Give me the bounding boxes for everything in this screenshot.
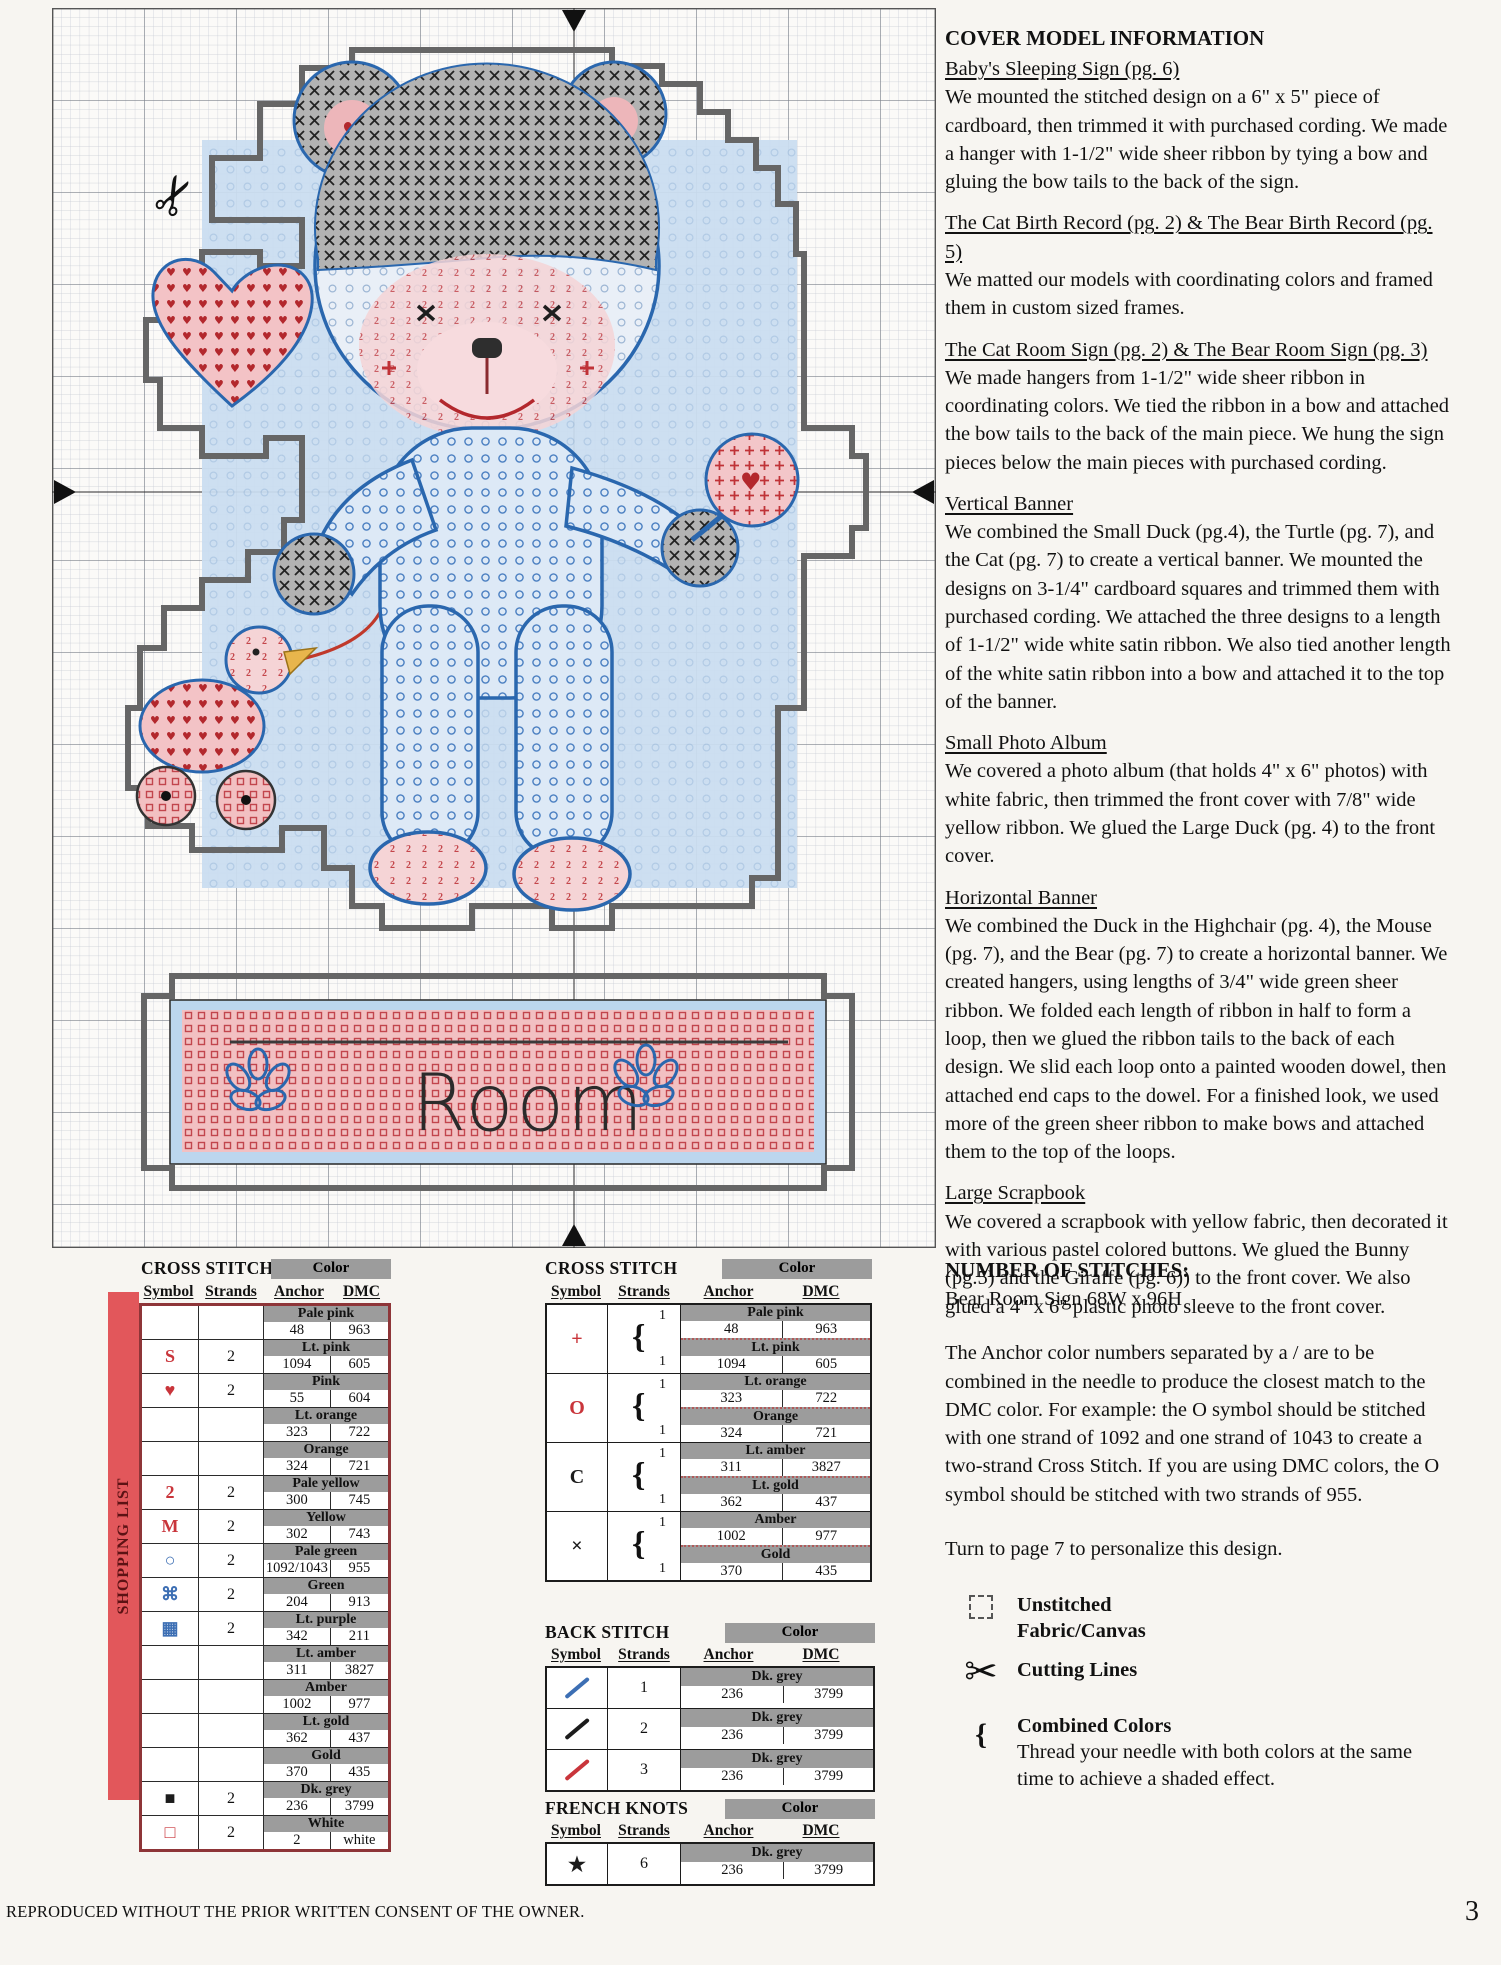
color-cell: Dk. grey2363799: [681, 1668, 873, 1708]
stitch-symbol: M: [142, 1510, 199, 1543]
cross-stitch-title: CROSS STITCH: [141, 1258, 273, 1279]
col-symbol: Symbol: [545, 1646, 607, 1666]
legend-item: {Combined ColorsThread your needle with …: [945, 1714, 1453, 1793]
stitch-symbol: 2: [142, 1476, 199, 1509]
combined-strands-brace: 1{1: [608, 1374, 680, 1442]
color-header-chip: Color: [725, 1623, 875, 1643]
color-entry: Lt. gold362437: [681, 1476, 870, 1511]
unstitched-square-icon: [969, 1595, 993, 1619]
color-numbers: 1092/1043955: [264, 1560, 388, 1577]
anchor-number: 311: [264, 1662, 330, 1679]
stitch-symbol: ×: [547, 1512, 608, 1580]
color-name: Dk. grey: [681, 1668, 873, 1686]
legend-label: UnstitchedFabric/Canvas: [1017, 1593, 1146, 1644]
color-cell: Pale pink48963: [264, 1306, 388, 1339]
cross-stitch-title: CROSS STITCH: [545, 1258, 677, 1278]
cover-model-section: Vertical BannerWe combined the Small Duc…: [945, 490, 1453, 716]
back-stitch-row: 2Dk. grey2363799: [547, 1708, 873, 1749]
col-symbol: Symbol: [139, 1283, 198, 1303]
stitch-symbol: [547, 1750, 608, 1790]
brace-glyph: {: [632, 1525, 645, 1563]
brace-icon: {: [945, 1714, 1017, 1793]
col-anchor: Anchor: [681, 1283, 776, 1303]
col-anchor: Anchor: [681, 1646, 776, 1666]
dmc-number: 977: [330, 1696, 388, 1713]
cover-model-section: Baby's Sleeping Sign (pg. 6)We mounted t…: [945, 55, 1453, 196]
color-entry: Lt. purple342211: [264, 1612, 388, 1645]
anchor-number: 2: [264, 1832, 330, 1849]
cover-model-section: The Cat Birth Record (pg. 2) & The Bear …: [945, 209, 1453, 322]
color-numbers: 370435: [681, 1563, 870, 1580]
color-entry: Lt. orange323722: [681, 1374, 870, 1407]
anchor-number: 302: [264, 1526, 330, 1543]
combined-row: C1{1Lt. amber3113827Lt. gold362437: [547, 1442, 870, 1511]
dmc-number: 605: [782, 1356, 870, 1373]
table-header: FRENCH KNOTS Color: [545, 1798, 875, 1822]
section-body: We made hangers from 1-1/2" wide sheer r…: [945, 364, 1453, 477]
back-stitch-rows: 1Dk. grey23637992Dk. grey23637993Dk. gre…: [545, 1666, 875, 1792]
color-name: Lt. amber: [264, 1646, 388, 1662]
section-heading: Horizontal Banner: [945, 884, 1453, 912]
stitch-symbol: [142, 1748, 199, 1781]
dmc-number: 963: [782, 1321, 870, 1338]
cross-stitch-row: ♥2Pink55604: [142, 1373, 388, 1407]
number-of-stitches: NUMBER OF STITCHES: Bear Room Sign 68W x…: [945, 1256, 1453, 1807]
stitch-symbol: [142, 1306, 199, 1339]
shopping-list-banner: SHOPPING LIST: [108, 1292, 139, 1800]
strands-value: 2: [199, 1510, 264, 1543]
color-cell: Dk. grey2363799: [681, 1750, 873, 1790]
color-name: Pale green: [264, 1544, 388, 1560]
anchor-number: 1002: [681, 1528, 782, 1545]
stitch-symbol: [142, 1442, 199, 1475]
legend-item: UnstitchedFabric/Canvas: [945, 1593, 1453, 1644]
column-headers: Symbol Strands Anchor DMC: [545, 1283, 872, 1303]
strands-value: 2: [199, 1816, 264, 1849]
color-header-chip: Color: [722, 1259, 872, 1279]
dmc-number: 605: [330, 1356, 388, 1373]
col-anchor: Anchor: [264, 1283, 334, 1303]
color-name: Orange: [264, 1442, 388, 1458]
color-numbers: 1094605: [264, 1356, 388, 1373]
stitch-symbol: +: [547, 1305, 608, 1373]
color-entry: Lt. pink1094605: [264, 1340, 388, 1373]
color-numbers: 2363799: [681, 1768, 873, 1785]
combined-cross-stitch-rows: +1{1Pale pink48963Lt. pink1094605O1{1Lt.…: [545, 1303, 872, 1582]
stitch-symbol: C: [547, 1443, 608, 1511]
anchor-number: 1092/1043: [264, 1560, 330, 1577]
cross-stitch-row: ■2Dk. grey2363799: [142, 1781, 388, 1815]
french-knots-rows: ★6Dk. grey2363799: [545, 1842, 875, 1886]
dmc-number: 3799: [330, 1798, 388, 1815]
back-stitch-row: 1Dk. grey2363799: [547, 1668, 873, 1708]
color-entry: Lt. orange323722: [264, 1408, 388, 1441]
color-entry: Pale green1092/1043955: [264, 1544, 388, 1577]
color-name: White: [264, 1816, 388, 1832]
brace-glyph: {: [632, 1456, 645, 1494]
strand-count-top: 1: [659, 1446, 666, 1462]
color-numbers: 3113827: [681, 1459, 870, 1476]
color-entry: Lt. pink1094605: [681, 1338, 870, 1373]
strand-count-top: 1: [659, 1377, 666, 1393]
cross-stitch-row: Lt. gold362437: [142, 1713, 388, 1747]
stitch-symbol: ■: [142, 1782, 199, 1815]
color-entry: White2white: [264, 1816, 388, 1849]
col-strands: Strands: [607, 1646, 681, 1666]
color-entry: Lt. amber3113827: [264, 1646, 388, 1679]
color-numbers: 48963: [681, 1321, 870, 1338]
color-cell: Green204913: [264, 1578, 388, 1611]
cross-stitch-row: Lt. amber3113827: [142, 1645, 388, 1679]
color-entry: Yellow302743: [264, 1510, 388, 1543]
anchor-number: 236: [264, 1798, 330, 1815]
stitch-symbol: ★: [547, 1844, 608, 1884]
strand-count-bottom: 1: [659, 1561, 666, 1577]
column-headers: Symbol Strands Anchor DMC: [139, 1283, 391, 1303]
color-cell: Gold370435: [264, 1748, 388, 1781]
color-name: Green: [264, 1578, 388, 1594]
cross-stitch-row: M2Yellow302743: [142, 1509, 388, 1543]
cross-stitch-row: Pale pink48963: [142, 1306, 388, 1339]
color-numbers: 3113827: [264, 1662, 388, 1679]
anchor-number: 362: [264, 1730, 330, 1747]
combined-strands-brace: 1{1: [608, 1512, 680, 1580]
cross-stitch-row: ○2Pale green1092/1043955: [142, 1543, 388, 1577]
cross-stitch-row: Amber1002977: [142, 1679, 388, 1713]
combined-row: O1{1Lt. orange323722Orange324721: [547, 1373, 870, 1442]
chart-svg: 2 ♥: [52, 8, 936, 1248]
color-header-chip: Color: [725, 1799, 875, 1819]
color-numbers: 302743: [264, 1526, 388, 1543]
color-numbers: 324721: [681, 1425, 870, 1442]
stitch-symbol: ○: [142, 1544, 199, 1577]
color-name: Lt. orange: [264, 1408, 388, 1424]
stitch-symbol: S: [142, 1340, 199, 1373]
color-cell: Dk. grey2363799: [681, 1709, 873, 1749]
color-name: Dk. grey: [264, 1782, 388, 1798]
strands-value: [199, 1442, 264, 1475]
strand-count-bottom: 1: [659, 1423, 666, 1439]
anchor-number: 323: [264, 1424, 330, 1441]
color-name: Amber: [264, 1680, 388, 1696]
anchor-number: 324: [681, 1425, 782, 1442]
anchor-number: 1094: [264, 1356, 330, 1373]
strand-count-top: 1: [659, 1515, 666, 1531]
section-heading: The Cat Birth Record (pg. 2) & The Bear …: [945, 209, 1453, 266]
dmc-number: 3827: [782, 1459, 870, 1476]
color-entry: Lt. amber3113827: [681, 1443, 870, 1476]
section-body: We covered a photo album (that holds 4" …: [945, 757, 1453, 870]
stitch-symbol: □: [142, 1816, 199, 1849]
col-symbol: Symbol: [545, 1283, 607, 1303]
section-body: We matted our models with coordinating c…: [945, 266, 1453, 323]
anchor-number: 311: [681, 1459, 782, 1476]
anchor-number: 1002: [264, 1696, 330, 1713]
french-knots-table: FRENCH KNOTS Color Symbol Strands Anchor…: [545, 1798, 875, 1886]
anchor-number: 342: [264, 1628, 330, 1645]
col-symbol: Symbol: [545, 1822, 607, 1842]
color-name: Yellow: [264, 1510, 388, 1526]
backstitch-line-symbol: [564, 1759, 589, 1781]
nos-title: NUMBER OF STITCHES:: [945, 1256, 1453, 1285]
color-name: Dk. grey: [681, 1750, 873, 1768]
cross-stitch-row: Gold370435: [142, 1747, 388, 1781]
legend-item: ✂Cutting Lines: [945, 1658, 1453, 1699]
cross-stitch-chart: 2 ♥: [52, 8, 936, 1248]
color-cell: White2white: [264, 1816, 388, 1849]
col-strands: Strands: [198, 1283, 264, 1303]
strands-value: [199, 1306, 264, 1339]
color-cell: Dk. grey2363799: [264, 1782, 388, 1815]
strands-value: 2: [199, 1782, 264, 1815]
section-body: We mounted the stitched design on a 6" x…: [945, 83, 1453, 196]
color-numbers: 1094605: [681, 1356, 870, 1373]
col-dmc: DMC: [334, 1283, 389, 1303]
sign-text: Room: [412, 1059, 646, 1149]
color-name: Lt. orange: [681, 1374, 870, 1390]
cover-model-information: COVER MODEL INFORMATION Baby's Sleeping …: [945, 24, 1453, 1334]
color-cell: Lt. amber3113827: [264, 1646, 388, 1679]
color-name: Gold: [681, 1545, 870, 1563]
section-body: We combined the Duck in the Highchair (p…: [945, 912, 1453, 1167]
color-name: Dk. grey: [681, 1709, 873, 1727]
chart-legend: UnstitchedFabric/Canvas✂Cutting Lines{Co…: [945, 1593, 1453, 1792]
backstitch-line-symbol: [564, 1718, 589, 1740]
color-cell: Pink55604: [264, 1374, 388, 1407]
strands-value: [199, 1714, 264, 1747]
color-entry: Pale pink48963: [264, 1306, 388, 1339]
strands-value: 2: [608, 1709, 681, 1749]
table-header: BACK STITCH Color: [545, 1622, 875, 1646]
combined-strands-brace: 1{1: [608, 1305, 680, 1373]
anchor-number: 55: [264, 1390, 330, 1407]
anchor-number: 48: [681, 1321, 782, 1338]
dmc-number: 913: [330, 1594, 388, 1611]
legend-label: Combined ColorsThread your needle with b…: [1017, 1714, 1453, 1793]
copyright-notice: REPRODUCED WITHOUT THE PRIOR WRITTEN CON…: [6, 1902, 585, 1922]
dmc-number: 211: [330, 1628, 388, 1645]
anchor-number: 362: [681, 1494, 782, 1511]
stitch-symbol: O: [547, 1374, 608, 1442]
color-entry: Gold370435: [681, 1545, 870, 1580]
anchor-number: 324: [264, 1458, 330, 1475]
cover-model-section: The Cat Room Sign (pg. 2) & The Bear Roo…: [945, 336, 1453, 477]
cover-model-section: Small Photo AlbumWe covered a photo albu…: [945, 729, 1453, 870]
color-cell: Pale green1092/1043955: [264, 1544, 388, 1577]
nos-subtitle: Bear Room Sign 68W x 96H: [945, 1285, 1453, 1313]
legend-label-line: Combined Colors: [1017, 1714, 1453, 1740]
strands-value: 1: [608, 1668, 681, 1708]
strands-value: 2: [199, 1612, 264, 1645]
cover-model-sections: Baby's Sleeping Sign (pg. 6)We mounted t…: [945, 55, 1453, 1321]
color-numbers: 362437: [264, 1730, 388, 1747]
color-cell: Pale pink48963Lt. pink1094605: [681, 1305, 870, 1373]
color-entry: Pale pink48963: [681, 1305, 870, 1338]
dmc-number: 963: [330, 1322, 388, 1339]
strands-value: 6: [608, 1844, 681, 1884]
shopping-list-label: SHOPPING LIST: [115, 1477, 133, 1614]
cross-stitch-row: Orange324721: [142, 1441, 388, 1475]
color-numbers: 48963: [264, 1322, 388, 1339]
color-cell: Orange324721: [264, 1442, 388, 1475]
color-entry: Dk. grey2363799: [681, 1668, 873, 1703]
dmc-number: 3799: [783, 1862, 873, 1879]
color-cell: Amber1002977Gold370435: [681, 1512, 870, 1580]
dmc-number: 721: [330, 1458, 388, 1475]
section-heading: Large Scrapbook: [945, 1179, 1453, 1207]
cross-stitch-row: ⌘2Green204913: [142, 1577, 388, 1611]
dmc-number: 3799: [783, 1686, 873, 1703]
color-numbers: 362437: [681, 1494, 870, 1511]
anchor-number: 204: [264, 1594, 330, 1611]
combined-row: ×1{1Amber1002977Gold370435: [547, 1511, 870, 1580]
color-numbers: 55604: [264, 1390, 388, 1407]
color-numbers: 204913: [264, 1594, 388, 1611]
svg-text:♥: ♥: [740, 468, 762, 496]
color-name: Lt. gold: [681, 1476, 870, 1494]
legend-label-line: Fabric/Canvas: [1017, 1619, 1146, 1645]
cross-stitch-row: □2White2white: [142, 1815, 388, 1849]
color-name: Amber: [681, 1512, 870, 1528]
color-entry: Dk. grey2363799: [264, 1782, 388, 1815]
color-cell: Amber1002977: [264, 1680, 388, 1713]
strands-value: 2: [199, 1476, 264, 1509]
table-header: CROSS STITCH Color: [139, 1258, 391, 1283]
color-name: Dk. grey: [681, 1844, 873, 1862]
stitch-symbol: ⌘: [142, 1578, 199, 1611]
color-numbers: 1002977: [264, 1696, 388, 1713]
color-numbers: 323722: [681, 1390, 870, 1407]
stitch-symbol: [547, 1668, 608, 1708]
color-numbers: 370435: [264, 1764, 388, 1781]
section-heading: Baby's Sleeping Sign (pg. 6): [945, 55, 1453, 83]
legend-description: Thread your needle with both colors at t…: [1017, 1739, 1453, 1792]
unstitched-square-icon: [945, 1593, 1017, 1644]
color-numbers: 2363799: [681, 1727, 873, 1744]
nos-paragraph: The Anchor color numbers separated by a …: [945, 1339, 1453, 1509]
nos-note: Turn to page 7 to personalize this desig…: [945, 1535, 1453, 1563]
color-entry: Dk. grey2363799: [681, 1709, 873, 1744]
color-numbers: 323722: [264, 1424, 388, 1441]
color-entry: Lt. gold362437: [264, 1714, 388, 1747]
col-strands: Strands: [607, 1283, 681, 1303]
combined-strands-brace: 1{1: [608, 1443, 680, 1511]
dmc-number: 722: [330, 1424, 388, 1441]
strands-cell: 1{1: [608, 1305, 681, 1373]
color-numbers: 324721: [264, 1458, 388, 1475]
color-numbers: 2363799: [681, 1862, 873, 1879]
section-heading: Vertical Banner: [945, 490, 1453, 518]
color-name: Pale pink: [264, 1306, 388, 1322]
french-knots-title: FRENCH KNOTS: [545, 1798, 688, 1818]
dmc-number: 721: [782, 1425, 870, 1442]
color-entry: Orange324721: [264, 1442, 388, 1475]
scissors-icon: ✂: [945, 1658, 1017, 1699]
color-name: Pink: [264, 1374, 388, 1390]
column-headers: Symbol Strands Anchor DMC: [545, 1822, 875, 1842]
section-body: We combined the Small Duck (pg.4), the T…: [945, 518, 1453, 716]
strands-value: [199, 1408, 264, 1441]
anchor-number: 236: [681, 1727, 783, 1744]
color-name: Pale pink: [681, 1305, 870, 1321]
anchor-number: 370: [681, 1563, 782, 1580]
stitch-symbol: [142, 1680, 199, 1713]
strands-value: [199, 1646, 264, 1679]
col-strands: Strands: [607, 1822, 681, 1842]
color-name: Orange: [681, 1407, 870, 1425]
strands-value: 2: [199, 1374, 264, 1407]
col-dmc: DMC: [776, 1646, 866, 1666]
dmc-number: 3799: [783, 1727, 873, 1744]
anchor-number: 236: [681, 1862, 783, 1879]
color-cell: Lt. orange323722: [264, 1408, 388, 1441]
color-cell: Lt. gold362437: [264, 1714, 388, 1747]
color-numbers: 2white: [264, 1832, 388, 1849]
color-entry: Pale yellow300745: [264, 1476, 388, 1509]
color-name: Lt. gold: [264, 1714, 388, 1730]
dmc-number: 745: [330, 1492, 388, 1509]
color-entry: Orange324721: [681, 1407, 870, 1442]
dmc-number: 955: [330, 1560, 388, 1577]
color-cell: Lt. purple342211: [264, 1612, 388, 1645]
french-knot-row: ★6Dk. grey2363799: [547, 1844, 873, 1884]
color-name: Pale yellow: [264, 1476, 388, 1492]
strands-cell: 1{1: [608, 1443, 681, 1511]
color-numbers: 2363799: [264, 1798, 388, 1815]
brace-glyph: {: [632, 1318, 645, 1356]
color-entry: Amber1002977: [264, 1680, 388, 1713]
col-anchor: Anchor: [681, 1822, 776, 1842]
combined-row: +1{1Pale pink48963Lt. pink1094605: [547, 1305, 870, 1373]
dmc-number: 435: [782, 1563, 870, 1580]
stitch-symbol: [142, 1408, 199, 1441]
color-numbers: 1002977: [681, 1528, 870, 1545]
color-numbers: 342211: [264, 1628, 388, 1645]
dmc-number: 604: [330, 1390, 388, 1407]
back-stitch-row: 3Dk. grey2363799: [547, 1749, 873, 1790]
cover-model-section: Horizontal BannerWe combined the Duck in…: [945, 884, 1453, 1167]
pattern-book-page: 2 ♥: [0, 0, 1501, 1965]
legend-label: Cutting Lines: [1017, 1658, 1137, 1699]
back-stitch-title: BACK STITCH: [545, 1622, 669, 1642]
col-dmc: DMC: [776, 1822, 866, 1842]
color-name: Gold: [264, 1748, 388, 1764]
back-stitch-table: BACK STITCH Color Symbol Strands Anchor …: [545, 1622, 875, 1792]
color-entry: Dk. grey2363799: [681, 1750, 873, 1785]
color-entry: Dk. grey2363799: [681, 1844, 873, 1879]
stitch-symbol: [142, 1714, 199, 1747]
legend-label-line: Unstitched: [1017, 1593, 1146, 1619]
dmc-number: white: [330, 1832, 388, 1849]
color-entry: Pink55604: [264, 1374, 388, 1407]
dmc-number: 3827: [330, 1662, 388, 1679]
color-name: Lt. pink: [264, 1340, 388, 1356]
strand-count-top: 1: [659, 1308, 666, 1324]
strands-value: [199, 1680, 264, 1713]
column-headers: Symbol Strands Anchor DMC: [545, 1646, 875, 1666]
strands-value: [199, 1748, 264, 1781]
strands-value: 2: [199, 1340, 264, 1373]
anchor-number: 323: [681, 1390, 782, 1407]
color-cell: Yellow302743: [264, 1510, 388, 1543]
color-cell: Dk. grey2363799: [681, 1844, 873, 1884]
dmc-number: 722: [782, 1390, 870, 1407]
brace-icon: {: [975, 1718, 987, 1751]
stitch-symbol: ♥: [142, 1374, 199, 1407]
cover-info-title: COVER MODEL INFORMATION: [945, 24, 1453, 53]
anchor-number: 236: [681, 1686, 783, 1703]
section-heading: The Cat Room Sign (pg. 2) & The Bear Roo…: [945, 336, 1453, 364]
